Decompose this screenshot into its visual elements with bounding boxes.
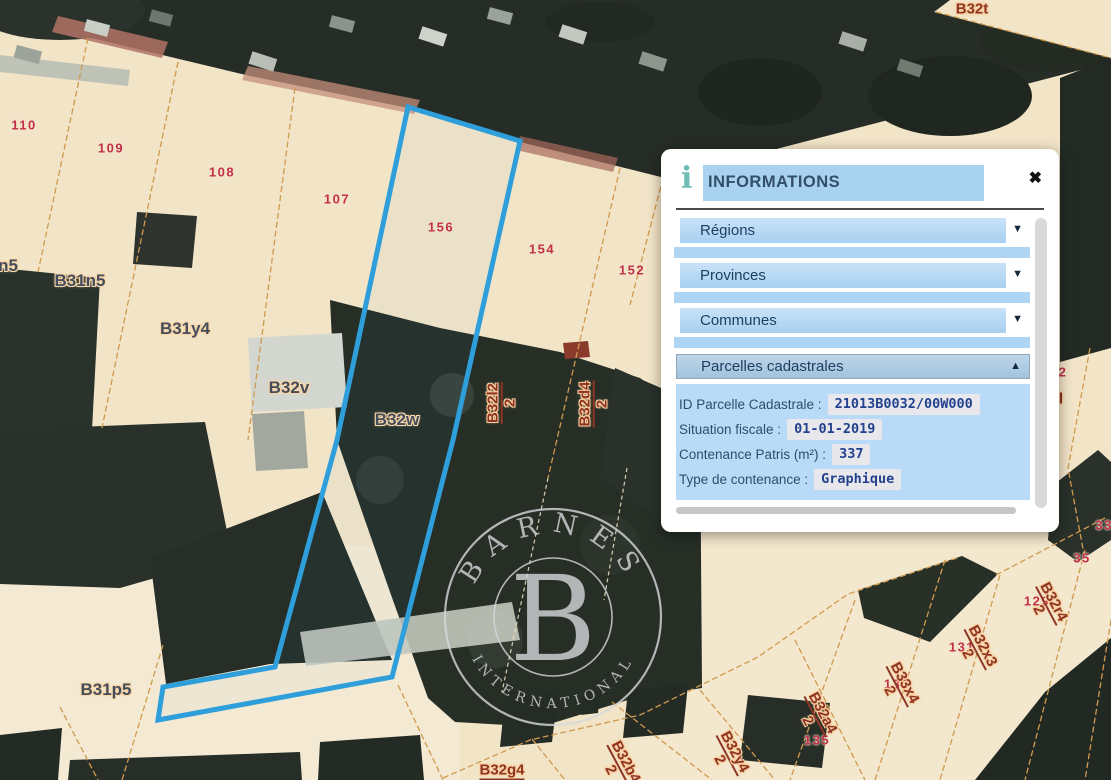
panel-title: INFORMATIONS xyxy=(708,173,840,192)
dropdown-communes[interactable]: Communes ▼ xyxy=(680,308,1031,333)
parcel-details: ID Parcelle Cadastrale :21013B0032/00W00… xyxy=(676,384,1030,500)
detail-row-contenance: Contenance Patris (m²) :337 xyxy=(679,442,1026,467)
dropdown-provinces[interactable]: Provinces ▼ xyxy=(680,263,1031,288)
detail-row-type: Type de contenance :Graphique xyxy=(679,467,1026,492)
horizontal-scrollbar[interactable] xyxy=(676,507,1016,514)
caret-up-icon: ▲ xyxy=(1010,360,1021,372)
dropdown-regions[interactable]: Régions ▼ xyxy=(680,218,1031,243)
section-parcelles-cadastrales[interactable]: Parcelles cadastrales ▲ xyxy=(676,354,1030,379)
section-label: Parcelles cadastrales xyxy=(701,358,844,375)
contenance-value: 337 xyxy=(832,444,870,465)
dropdown-provinces-label: Provinces xyxy=(700,267,766,284)
watermark-monogram: B xyxy=(510,550,597,688)
vertical-scrollbar[interactable] xyxy=(1035,218,1047,508)
communes-value-bar[interactable] xyxy=(674,337,1030,348)
informations-panel: i INFORMATIONS ✖ Régions ▼ Provinces ▼ C… xyxy=(661,149,1059,532)
regions-value-bar[interactable] xyxy=(674,247,1030,258)
caret-down-icon: ▼ xyxy=(1012,313,1023,325)
caret-down-icon: ▼ xyxy=(1012,268,1023,280)
detail-row-situation: Situation fiscale :01-01-2019 xyxy=(679,417,1026,442)
app-window: BARNES INTERNATIONAL B 11010910810715615… xyxy=(0,0,1111,780)
detail-row-id: ID Parcelle Cadastrale :21013B0032/00W00… xyxy=(679,392,1026,417)
panel-body: Régions ▼ Provinces ▼ Communes ▼ Parcell… xyxy=(661,213,1059,514)
header-separator xyxy=(676,208,1044,210)
provinces-value-bar[interactable] xyxy=(674,292,1030,303)
dropdown-communes-label: Communes xyxy=(700,312,777,329)
parcel-id-value: 21013B0032/00W000 xyxy=(828,394,980,415)
close-icon[interactable]: ✖ xyxy=(1029,168,1042,188)
type-contenance-value: Graphique xyxy=(814,469,901,490)
dropdown-regions-label: Régions xyxy=(700,222,755,239)
caret-down-icon: ▼ xyxy=(1012,223,1023,235)
situation-fiscale-value: 01-01-2019 xyxy=(787,419,882,440)
info-icon: i xyxy=(681,162,692,196)
panel-header: i INFORMATIONS ✖ xyxy=(661,149,1059,209)
